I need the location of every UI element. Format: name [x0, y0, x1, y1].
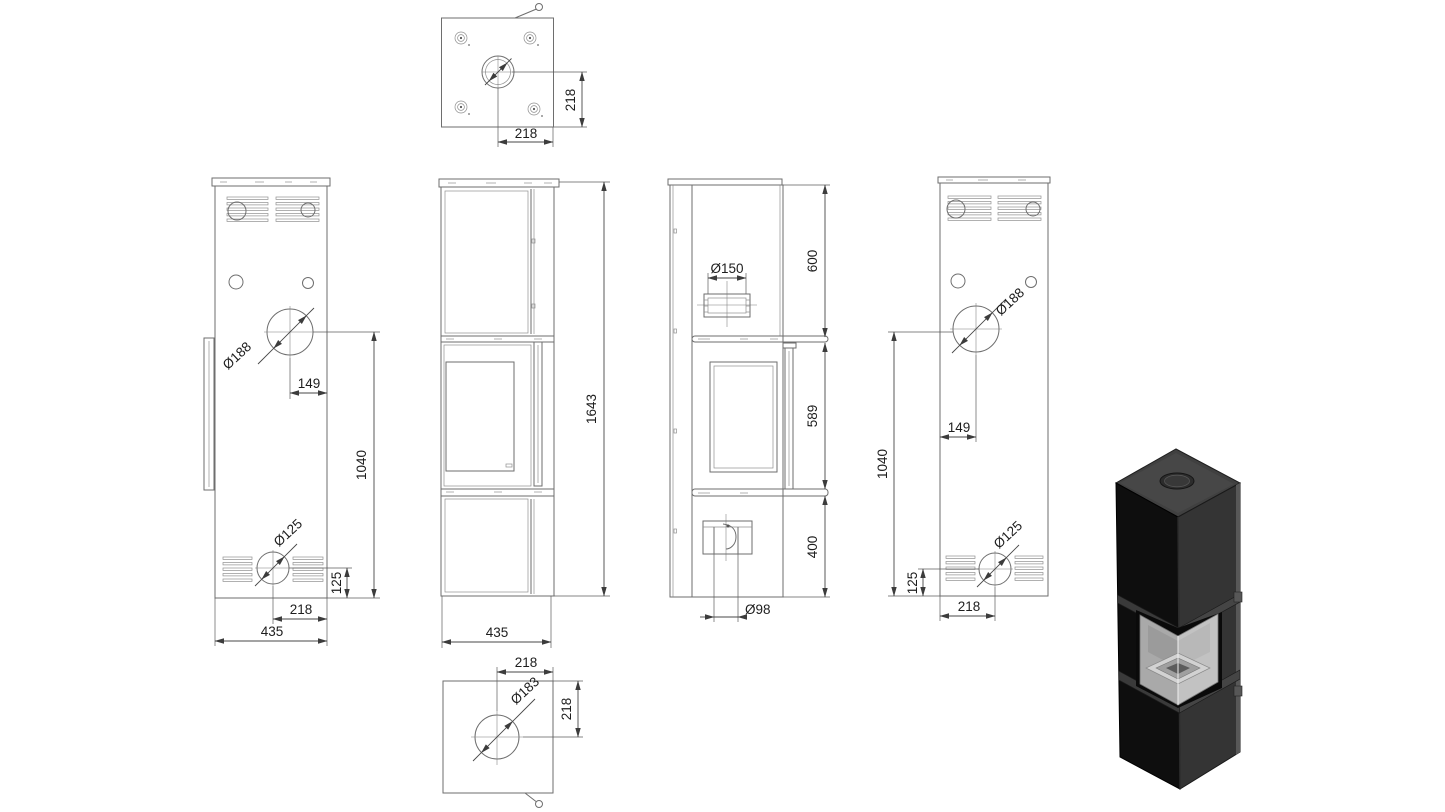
dim-label-left-435: 435	[261, 624, 284, 639]
front-view-drawing: 1643 435	[434, 169, 616, 655]
top-view-drawing: 218 218	[441, 3, 601, 155]
bottom-module	[445, 499, 534, 594]
bottom-view: Ø183 218 218	[439, 654, 594, 812]
air-valve-lever	[723, 524, 736, 549]
air-intake	[703, 514, 752, 561]
dim-218-bottom: 218	[940, 587, 995, 621]
air-inlet-opening: Ø125	[977, 518, 1025, 587]
dim-600-589-400: 600 589 400	[783, 185, 830, 597]
handle-cap	[783, 343, 796, 348]
screw-holes	[455, 32, 543, 117]
flue-collar	[697, 281, 757, 327]
dim-d98: Ø98	[700, 554, 771, 622]
dim-label-back-d150: Ø150	[710, 261, 743, 276]
base-plate-outline	[443, 681, 553, 808]
left-side-view: Ø188 149 1040	[200, 175, 390, 653]
body-outline	[439, 179, 559, 596]
dim-149: 149	[290, 358, 327, 399]
floor-outlet: Ø183	[471, 674, 542, 765]
top-module	[445, 189, 535, 334]
door-module	[444, 342, 542, 486]
dim-435: 435	[442, 596, 551, 648]
dim-label-right-125: 125	[905, 572, 920, 595]
leader-circle-icon	[536, 801, 543, 808]
dim-label-back-400: 400	[805, 536, 820, 559]
flue-outlet	[482, 56, 514, 88]
drawing-sheet: 218 218	[0, 0, 1445, 812]
mount-holes	[229, 275, 314, 289]
right-side-drawing: Ø188 1040 149	[878, 174, 1070, 649]
rear-flue-opening: Ø188	[220, 306, 314, 372]
bottom-view-drawing: Ø183 218 218	[439, 654, 594, 812]
left-side-drawing: Ø188 149 1040	[200, 175, 390, 653]
stove-3d-render	[1110, 440, 1250, 800]
dim-label-left-1040: 1040	[354, 450, 369, 480]
top-vents	[227, 197, 319, 221]
dim-label-front-1643: 1643	[584, 394, 599, 424]
dim-218-bottom: 218 435	[215, 586, 327, 646]
dim-label-left-d125: Ø125	[271, 516, 305, 549]
hinge-tab	[1234, 592, 1242, 602]
dim-label-left-218: 218	[290, 602, 313, 617]
module-joint-2	[692, 489, 828, 496]
dim-label-back-d98: Ø98	[745, 602, 771, 617]
mount-holes	[951, 274, 1037, 288]
air-inlet-opening: Ø125	[255, 516, 305, 586]
body-outline	[668, 179, 783, 597]
dim-label-left-125: 125	[329, 572, 344, 595]
dim-125: 125	[289, 568, 352, 598]
back-view: Ø150	[665, 169, 840, 655]
dim-label-right-149: 149	[948, 420, 971, 435]
top-view: 218 218	[441, 3, 601, 155]
dim-149: 149	[940, 355, 976, 442]
dim-label-right-d188: Ø188	[993, 285, 1027, 318]
dim-label-bottom-d183: Ø183	[508, 674, 542, 707]
dim-label-right-1040: 1040	[875, 449, 890, 479]
front-view: 1643 435	[434, 169, 616, 655]
dim-label-left-d188: Ø188	[220, 339, 254, 372]
dim-1643: 1643	[554, 182, 610, 596]
bottom-vents	[946, 556, 1043, 580]
hinge-tab	[1234, 686, 1242, 696]
back-view-drawing: Ø150	[665, 169, 840, 655]
module-joint-2	[441, 489, 554, 496]
dim-218-vertical: 218	[512, 72, 587, 127]
product-render	[1110, 440, 1250, 800]
dim-label-right-d125: Ø125	[991, 518, 1025, 551]
middle-window-opening	[710, 362, 777, 472]
door-glass	[446, 362, 514, 471]
dim-125: 125	[905, 569, 979, 596]
dim-label-bottom-218-right: 218	[559, 698, 574, 721]
top-vents	[947, 196, 1041, 220]
dim-label-back-600: 600	[805, 250, 820, 273]
body-outline	[938, 177, 1050, 596]
module-joint-1	[441, 336, 554, 342]
dim-label-right-218: 218	[958, 599, 981, 614]
dim-218-horizontal: 218	[498, 88, 553, 147]
dim-label-front-435: 435	[486, 625, 509, 640]
dim-1040: 1040	[875, 332, 953, 596]
dim-label-bottom-218-top: 218	[515, 655, 538, 670]
dim-label-top-218-horizontal: 218	[515, 126, 538, 141]
dim-label-top-218-vertical: 218	[563, 89, 578, 112]
rear-flue-opening: Ø188	[950, 285, 1027, 355]
right-side-view: Ø188 1040 149	[878, 174, 1070, 649]
dim-label-left-149: 149	[298, 376, 321, 391]
dim-label-back-589: 589	[805, 405, 820, 428]
